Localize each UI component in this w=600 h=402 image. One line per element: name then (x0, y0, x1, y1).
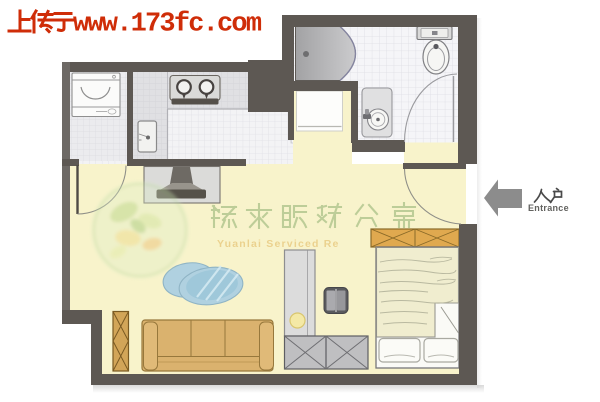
svg-text:Yuanlai Serviced Re: Yuanlai Serviced Re (217, 238, 340, 250)
svg-text:www.173fc.com: www.173fc.com (73, 10, 262, 40)
svg-text:Entrance: Entrance (528, 203, 569, 213)
